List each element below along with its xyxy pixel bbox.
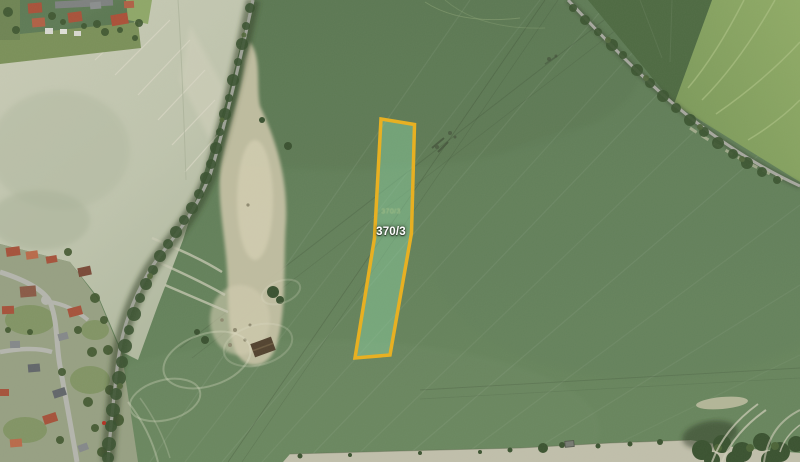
map-viewport: 370/3 370/3 bbox=[0, 0, 800, 462]
parcel-number-label: 370/3 bbox=[376, 226, 406, 238]
cadastral-map-number: 370/3 bbox=[381, 209, 401, 216]
